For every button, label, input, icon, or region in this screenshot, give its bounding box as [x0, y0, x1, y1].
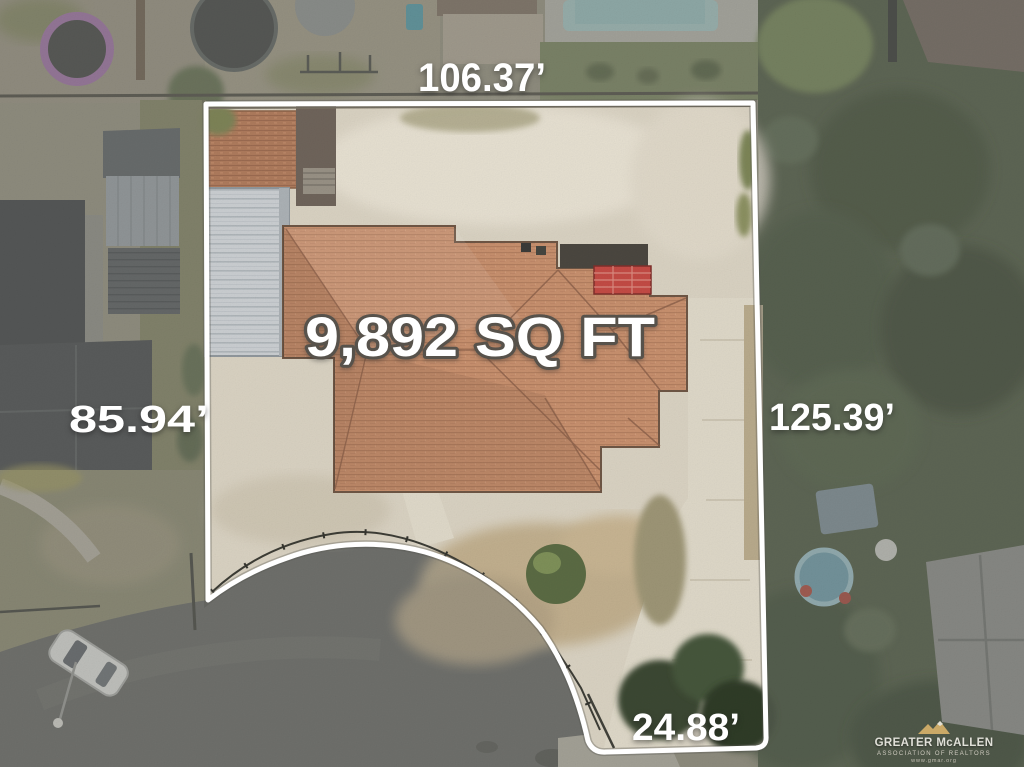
- lot-area-label: 9,892 SQ FT: [305, 305, 655, 368]
- measurement-bottom: 24.88’: [632, 707, 740, 749]
- measurement-left: 85.94’: [69, 399, 209, 441]
- photo-grain: [0, 0, 1024, 767]
- aerial-photo-stage: 106.37’ 85.94’ 125.39’ 24.88’ 9,892 SQ F…: [0, 0, 1024, 767]
- measurement-top: 106.37’: [418, 56, 546, 100]
- aerial-photo: 106.37’ 85.94’ 125.39’ 24.88’ 9,892 SQ F…: [0, 0, 1024, 767]
- measurement-right: 125.39’: [769, 397, 895, 439]
